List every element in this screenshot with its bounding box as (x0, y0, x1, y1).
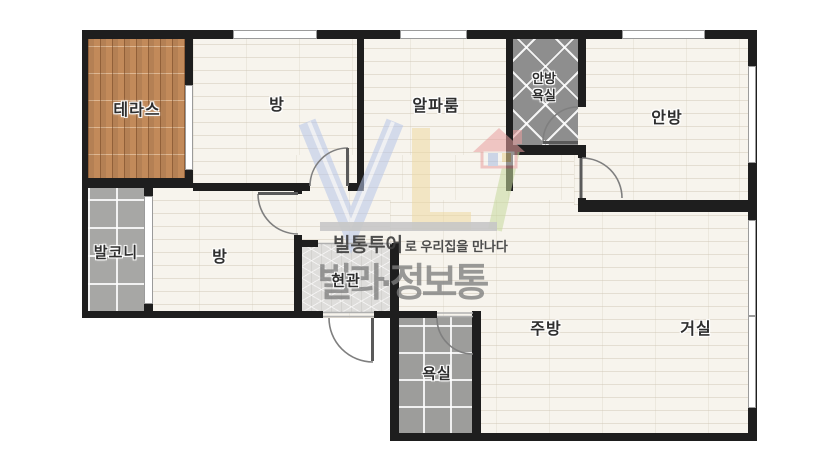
window-sash-divider (748, 315, 756, 317)
wall-segment (193, 183, 310, 191)
room-label-living-room: 거실 (680, 315, 711, 339)
wall-segment (294, 235, 302, 318)
wall-segment (578, 200, 757, 212)
room-label-bathroom: 욕실 (422, 363, 452, 384)
wall-segment (357, 30, 364, 191)
room-label-alpha-room: 알파룸 (412, 92, 459, 116)
room-label-master-bathroom-line1: 안방 (532, 71, 556, 88)
room-label-kitchen: 주방 (530, 315, 561, 339)
wall-segment (144, 188, 153, 196)
room-label-entrance: 현관 (331, 270, 361, 291)
wall-segment (144, 304, 153, 318)
room-label-room-top: 방 (269, 91, 285, 115)
wall-segment (390, 243, 399, 441)
wall-segment (348, 183, 364, 191)
wall-segment (82, 30, 88, 318)
room-label-terrace: 테라스 (113, 96, 160, 120)
wall-segment (506, 30, 513, 191)
room-label-room-middle: 방 (212, 243, 228, 267)
wall-segment (185, 30, 193, 85)
exterior-area (82, 318, 390, 472)
wall-segment (390, 433, 757, 441)
room-label-master-bathroom-line2: 욕실 (532, 88, 556, 105)
window-balcony (144, 196, 153, 304)
wall-segment (294, 240, 318, 247)
window-terrace (185, 85, 193, 170)
window-room-top (233, 30, 317, 39)
room-label-balcony: 발코니 (94, 242, 138, 263)
wall-segment (506, 145, 586, 155)
window-living-room-right (748, 220, 756, 408)
wall-segment (82, 311, 323, 318)
wall-segment (472, 311, 481, 441)
wall-segment (578, 30, 586, 107)
wall-segment (390, 311, 437, 318)
room-label-master-bathroom: 안방 욕실 (532, 71, 556, 105)
window-alpha-room (400, 30, 467, 39)
room-label-master-bedroom: 안방 (651, 104, 682, 128)
window-master-bedroom-right (748, 66, 756, 163)
floor-plan: 빌통투어 로 우리집을 만나다 빌라·정보통 테라스 방 알파룸 안방 욕실 안… (0, 0, 840, 472)
wall-segment (82, 178, 193, 188)
window-master-bedroom-top (622, 30, 705, 39)
